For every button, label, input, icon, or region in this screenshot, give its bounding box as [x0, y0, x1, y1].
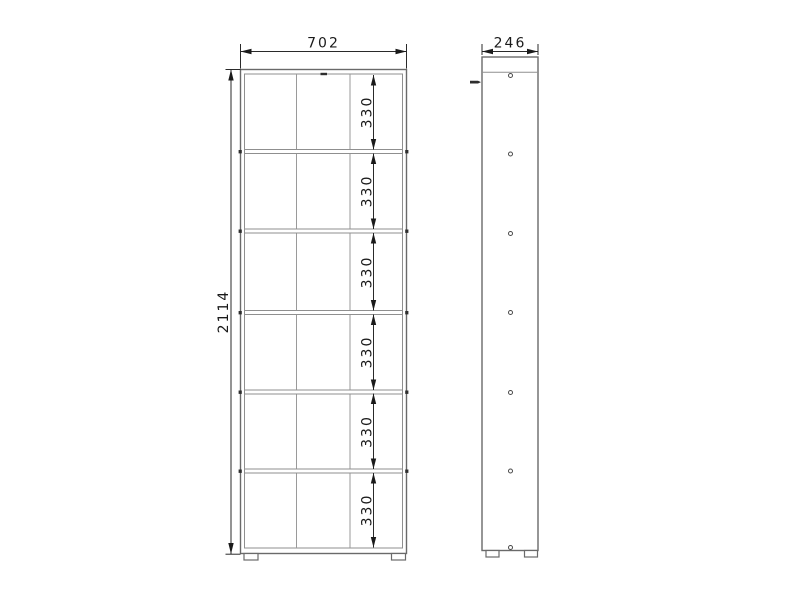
arrow-down-icon — [228, 543, 233, 554]
dim-overall-height: 2114 — [216, 70, 241, 555]
front-shelf-tick — [405, 470, 408, 473]
side-foot — [486, 551, 499, 558]
arrow-right-icon — [396, 49, 407, 54]
drawing-canvas: 702 2114 330 330 330 — [0, 0, 800, 600]
front-shelf — [245, 229, 403, 233]
side-view — [470, 57, 538, 557]
shelf-pin-hole — [509, 232, 513, 236]
shelf-pin-hole — [509, 152, 513, 156]
dim-row-label: 330 — [360, 494, 376, 527]
front-shelf — [245, 150, 403, 154]
front-shelf-tick — [405, 150, 408, 153]
side-panel-outline — [482, 57, 538, 551]
side-fitting-mark — [470, 81, 481, 84]
dim-height-label: 2114 — [216, 290, 232, 334]
front-shelf — [245, 469, 403, 473]
front-shelf-tick — [405, 230, 408, 233]
dim-overall-width: 702 — [241, 36, 407, 69]
front-foot — [244, 554, 258, 561]
front-shelf — [245, 390, 403, 394]
front-shelf-tick — [405, 311, 408, 314]
dim-width-label: 702 — [307, 36, 340, 52]
front-shelf-tick — [239, 391, 242, 394]
front-shelf-tick — [239, 150, 242, 153]
arrow-left-icon — [241, 49, 252, 54]
dim-row-label: 330 — [360, 415, 376, 448]
dim-row-label: 330 — [360, 96, 376, 129]
front-shelf-tick — [239, 311, 242, 314]
dim-row-label: 330 — [360, 175, 376, 208]
shelf-pin-hole — [509, 391, 513, 395]
front-shelf-tick — [239, 470, 242, 473]
arrow-left-icon — [482, 49, 493, 54]
shelf-pin-hole — [509, 74, 513, 78]
dim-depth-label: 246 — [494, 36, 527, 52]
shelf-pin-hole — [509, 311, 513, 315]
front-top-mark — [321, 73, 328, 75]
front-view — [239, 70, 409, 561]
arrow-up-icon — [228, 70, 233, 81]
dim-row-label: 330 — [360, 256, 376, 289]
dim-depth: 246 — [482, 36, 538, 56]
front-shelf-tick — [239, 230, 242, 233]
shelf-pin-hole — [509, 469, 513, 473]
shelf-pin-hole — [509, 546, 513, 550]
side-foot — [525, 551, 538, 558]
front-shelf-tick — [405, 391, 408, 394]
technical-drawing: 702 2114 330 330 330 — [0, 0, 800, 600]
arrow-right-icon — [527, 49, 538, 54]
front-shelf — [245, 311, 403, 315]
dim-row-label: 330 — [360, 336, 376, 369]
front-foot — [392, 554, 406, 561]
